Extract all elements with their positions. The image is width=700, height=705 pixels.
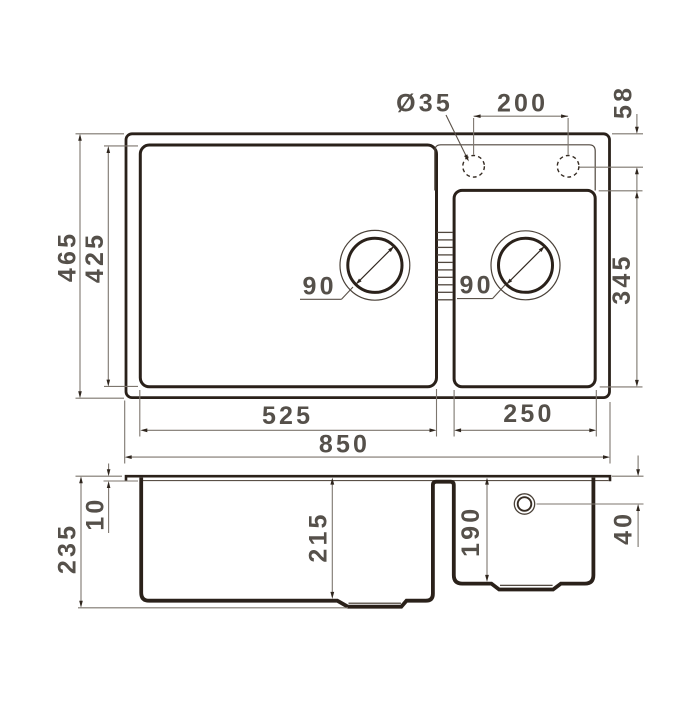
svg-text:425: 425 (81, 232, 109, 283)
svg-text:40: 40 (610, 511, 638, 545)
svg-text:90: 90 (302, 273, 336, 301)
svg-text:525: 525 (262, 402, 313, 430)
svg-text:850: 850 (319, 431, 370, 459)
svg-text:10: 10 (81, 496, 109, 530)
svg-text:215: 215 (305, 511, 333, 562)
svg-text:345: 345 (608, 253, 636, 304)
svg-text:190: 190 (457, 506, 485, 557)
svg-text:250: 250 (503, 400, 554, 428)
svg-text:90: 90 (459, 272, 493, 300)
svg-text:58: 58 (610, 85, 638, 119)
svg-text:200: 200 (497, 90, 548, 118)
svg-text:235: 235 (54, 523, 82, 574)
svg-text:Ø35: Ø35 (396, 90, 453, 118)
svg-text:465: 465 (53, 231, 81, 282)
